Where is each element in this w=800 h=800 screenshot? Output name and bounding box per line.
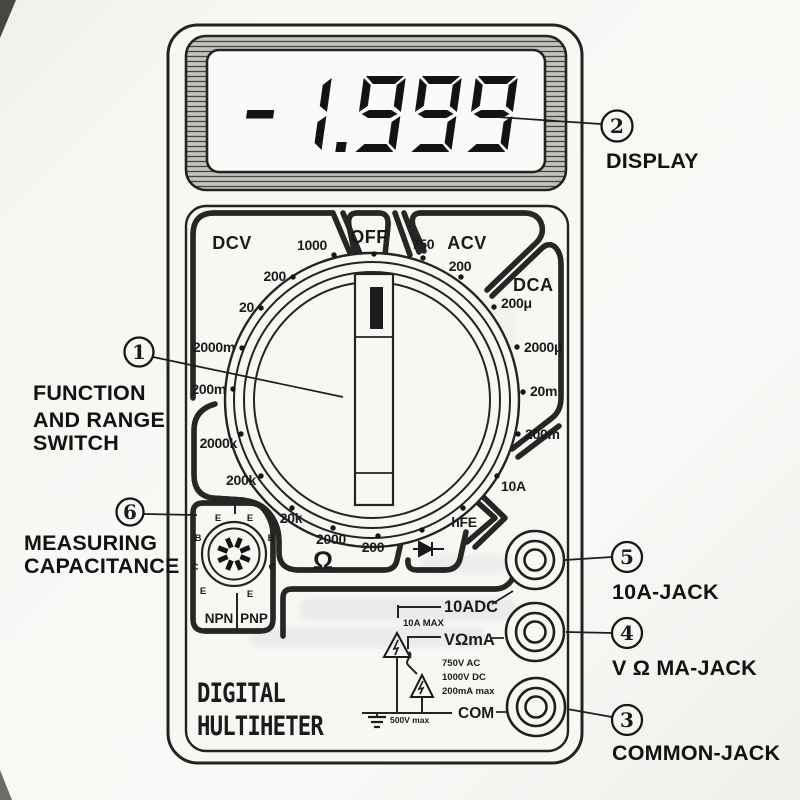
socket-pnp-label: PNP	[240, 611, 268, 626]
callout-6-measuring-capacitance: 6 MEASURING CAPACITANCE	[24, 499, 179, 579]
callout-1-function-switch: 1 FUNCTION AND RANGE SWITCH	[33, 338, 165, 456]
callout-number: 3	[620, 708, 634, 732]
socket-pin-label-e: E	[247, 589, 253, 600]
jack-label-10adc: 10ADC	[444, 598, 498, 616]
input-jacks	[506, 531, 565, 736]
multimeter-diagram: DCV OFF ACV DCA 1000 200 20 2000m 200m 7…	[0, 0, 800, 800]
ground-rating: 500V max	[390, 715, 429, 725]
jack-label-v-ohm-ma: VΩmA	[444, 631, 495, 649]
range-ohm-200k: 200k	[226, 472, 256, 488]
knob-pointer-mark	[370, 287, 383, 329]
socket-npn-label: NPN	[205, 611, 234, 626]
callout-number: 4	[620, 621, 634, 645]
callout-label: DISPLAY	[606, 149, 699, 173]
callout-number: 2	[610, 114, 624, 138]
range-ohm-2000k: 2000k	[200, 435, 238, 451]
range-dca-200u: 200μ	[501, 295, 532, 311]
dial-section-dca: DCA	[513, 275, 554, 295]
socket-pin-label-b: B	[268, 533, 275, 544]
callout-label: 10A-JACK	[612, 580, 719, 604]
range-dcv-20: 20	[239, 299, 254, 315]
range-dcv-2000m: 2000m	[193, 339, 235, 355]
brand-line2: HULTIHETER	[197, 711, 324, 742]
callout-number: 5	[620, 545, 634, 569]
rating-1000vdc: 1000V DC	[442, 672, 486, 683]
callout-4-v-ohm-ma-jack: 4 V Ω MA-JACK	[612, 618, 757, 680]
callout-label: CAPACITANCE	[24, 554, 179, 578]
range-ohm-20k: 20k	[280, 510, 303, 526]
rating-200ma: 200mA max	[442, 686, 495, 697]
dial-section-off: OFF	[350, 227, 388, 247]
callout-5-10a-jack: 5 10A-JACK	[612, 542, 719, 604]
socket-pin-label-e: E	[200, 586, 206, 597]
callout-label: FUNCTION	[33, 381, 146, 405]
callout-label: SWITCH	[33, 431, 119, 455]
socket-pin-label-e: E	[215, 513, 221, 524]
range-dca-200m: 200m	[525, 426, 560, 442]
range-dca-2000u: 2000μ	[524, 339, 562, 355]
rotary-dial	[225, 253, 519, 547]
jack-com	[507, 678, 565, 736]
dial-section-acv: ACV	[447, 233, 487, 253]
range-dcv-200m: 200m	[191, 381, 226, 397]
jack-label-com: COM	[458, 705, 494, 722]
socket-pin-label-c: C	[192, 562, 199, 573]
callout-label: COMMON-JACK	[612, 741, 780, 765]
callout-2-display: 2 DISPLAY	[602, 111, 699, 174]
dial-knob	[355, 274, 393, 505]
callout-3-common-jack: 3 COMMON-JACK	[612, 705, 780, 765]
range-acv-750: 750	[412, 236, 435, 252]
callout-number: 6	[123, 500, 137, 524]
dial-section-dcv: DCV	[212, 233, 252, 253]
brand-line1: DIGITAL	[197, 678, 286, 709]
range-ohm-2000: 2000	[316, 531, 346, 547]
rating-750vac: 750V AC	[442, 658, 480, 669]
callout-number: 1	[132, 340, 146, 364]
range-dcv-1000: 1000	[297, 237, 327, 253]
callout-label: AND RANGE	[33, 408, 165, 432]
socket-pin-label-b: B	[195, 533, 202, 544]
jack-note-10a-max: 10A MAX	[403, 618, 444, 629]
jack-10a	[506, 531, 564, 589]
scan-corner-smudge	[0, 770, 12, 800]
range-10a: 10A	[501, 478, 526, 494]
callout-label: MEASURING	[24, 531, 157, 555]
range-dca-20m: 20m	[530, 383, 557, 399]
callout-label: V Ω MA-JACK	[612, 656, 757, 680]
ohm-symbol: Ω	[313, 547, 333, 575]
range-acv-200: 200	[449, 258, 472, 274]
scan-corner-smudge	[0, 0, 16, 38]
socket-pin-label-c: C	[269, 562, 276, 573]
scanned-diagram-page: DCV OFF ACV DCA 1000 200 20 2000m 200m 7…	[0, 0, 800, 800]
socket-pin-label-e: E	[247, 513, 253, 524]
jack-v-ohm-ma	[506, 603, 564, 661]
range-hfe: hFE	[451, 514, 477, 530]
range-ohm-200: 200	[362, 539, 385, 555]
range-dcv-200: 200	[264, 268, 287, 284]
